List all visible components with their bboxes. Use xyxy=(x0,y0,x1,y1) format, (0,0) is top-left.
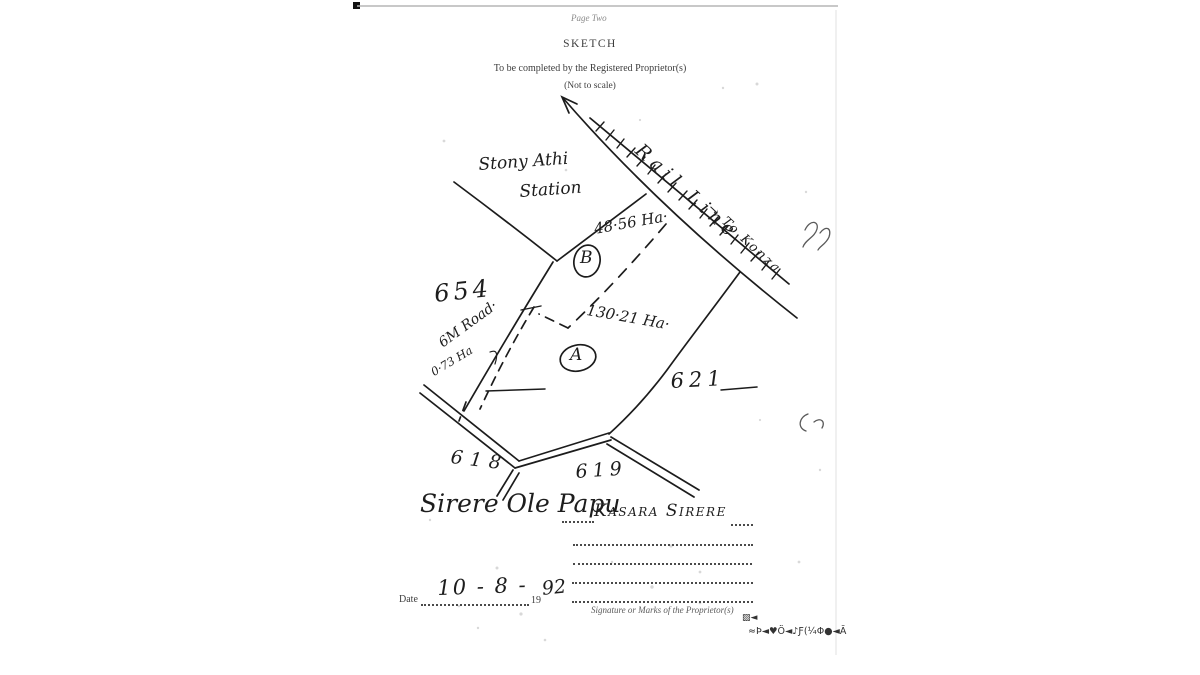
signature-dotted-row-2 xyxy=(573,562,752,565)
parcel-b-letter: B xyxy=(580,250,593,268)
name-dotted-line-1 xyxy=(562,520,594,523)
signature-caption: Signature or Marks of the Proprietor(s) xyxy=(591,606,734,615)
signature-dotted-row-4 xyxy=(572,600,753,603)
page-number-label: Page Two xyxy=(571,14,607,23)
date-handwritten-value: 10 - 8 - xyxy=(437,574,528,599)
parcel-619-label: 619 xyxy=(575,459,628,482)
year-prefix: 19 xyxy=(531,596,541,607)
dash-after-621 xyxy=(721,387,757,390)
signature-dotted-row-3 xyxy=(572,581,753,584)
proprietor-name-1: Sirere Ole Papu xyxy=(420,491,621,517)
parcel-a-letter: A xyxy=(570,347,582,365)
scanned-document-page: Page Two SKETCH To be completed by the R… xyxy=(0,0,1200,675)
print-artifact-row1: ▨◄ xyxy=(742,614,757,623)
name-dotted-line-2 xyxy=(731,523,753,526)
boundary-parcel-a-east xyxy=(609,272,740,434)
stray-mark-upper xyxy=(803,222,830,250)
form-instruction: To be completed by the Registered Propri… xyxy=(470,64,710,75)
stray-mark-lower xyxy=(800,414,823,431)
inner-boundary-mark xyxy=(486,389,545,391)
parcel-621-label: 621 xyxy=(670,367,726,392)
print-artifact-row2: ≈Ϸ◄♥Ö◄♪Ƒ(¼Φ●◄Ā xyxy=(748,627,846,637)
date-label: Date xyxy=(399,595,418,606)
sketch-drawing xyxy=(0,0,1200,675)
signature-dotted-row-1 xyxy=(573,543,753,546)
year-handwritten-value: 92 xyxy=(541,577,567,599)
boundary-dashed-corner xyxy=(539,314,568,328)
form-title: SKETCH xyxy=(540,38,640,50)
date-dotted-line xyxy=(421,603,529,606)
rail-line-southwest xyxy=(563,98,797,318)
proprietor-name-2: Kasara Sirere xyxy=(594,503,727,521)
scale-note: (Not to scale) xyxy=(540,82,640,92)
